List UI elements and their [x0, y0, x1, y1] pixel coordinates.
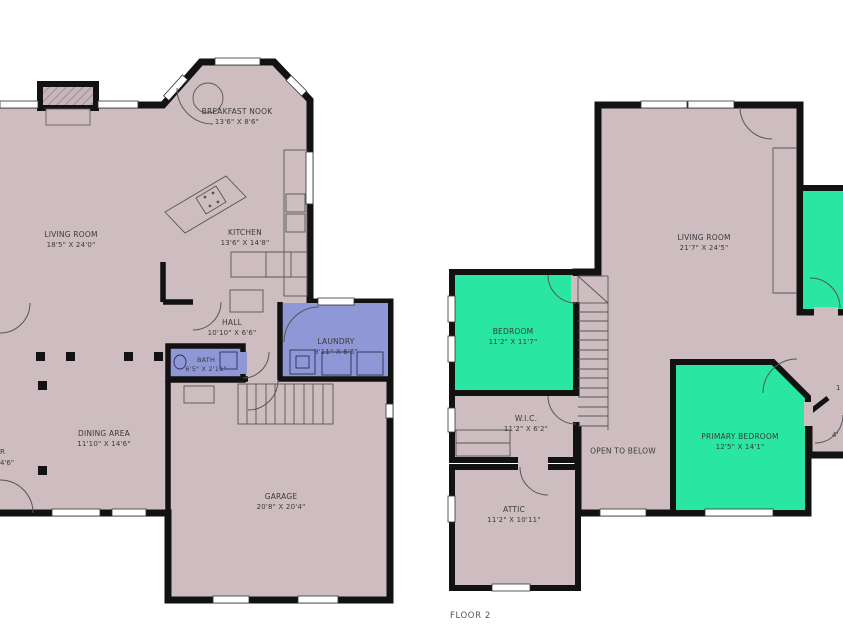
door-opening — [518, 455, 548, 471]
room-name: W.I.C. — [504, 413, 548, 424]
window — [0, 101, 38, 108]
door-opening — [804, 402, 813, 426]
room-name: GARAGE — [257, 491, 306, 502]
door-opening — [239, 352, 247, 374]
window — [306, 152, 313, 204]
room-name: BATH — [185, 356, 226, 365]
window — [448, 336, 455, 362]
post — [66, 352, 75, 361]
label-attic: ATTIC 11'2" X 10'11" — [487, 504, 541, 526]
room-dims: 11'10" X 14'6" — [77, 439, 131, 450]
window — [448, 296, 455, 322]
label-garage: GARAGE 20'8" X 20'4" — [257, 491, 306, 513]
room-name: DINING AREA — [77, 428, 131, 439]
post — [36, 352, 45, 361]
window — [688, 101, 734, 108]
hearth — [46, 109, 90, 125]
label-laundry: LAUNDRY 9'11" X 6'6" — [314, 336, 358, 358]
room-dims: 21'7" X 24'5" — [677, 243, 730, 254]
floorplan-canvas: BREAKFAST NOOK 13'6" X 8'6" LIVING ROOM … — [0, 0, 843, 632]
room-name: OPEN TO BELOW — [590, 445, 656, 456]
room-name: KITCHEN — [221, 227, 270, 238]
room-name: LAUNDRY — [314, 336, 358, 347]
room-dims: 12'5" X 14'1" — [701, 442, 778, 453]
right-edge-fragment-2: 4' — [832, 431, 838, 439]
window — [298, 596, 338, 603]
burner — [204, 196, 207, 199]
floorplan-drawing — [0, 0, 843, 632]
burner — [209, 205, 212, 208]
burner — [217, 201, 220, 204]
window — [213, 596, 249, 603]
door-opening — [571, 396, 583, 422]
label-kitchen: KITCHEN 13'6" X 14'8" — [221, 227, 270, 249]
window — [600, 509, 646, 516]
room-dims: 13'6" X 14'8" — [221, 238, 270, 249]
label-living-room-f2: LIVING ROOM 21'7" X 24'5" — [677, 232, 730, 254]
room-dims: 11'2" X 11'7" — [489, 337, 538, 348]
room-name: LIVING ROOM — [677, 232, 730, 243]
room-name: BREAKFAST NOOK — [202, 106, 273, 117]
window — [215, 58, 260, 65]
door-opening — [796, 320, 805, 344]
post — [38, 381, 47, 390]
chimney — [40, 84, 96, 108]
room-name: HALL — [208, 317, 257, 328]
door-opening — [571, 276, 583, 302]
window — [52, 509, 100, 516]
left-edge-fragment-2: 4'6" — [0, 459, 14, 467]
post — [38, 466, 47, 475]
label-hall: HALL 10'10" X 6'6" — [208, 317, 257, 339]
room-name: ATTIC — [487, 504, 541, 515]
label-open-to-below: OPEN TO BELOW — [590, 445, 656, 456]
burner — [212, 192, 215, 195]
post — [154, 352, 163, 361]
window — [112, 509, 146, 516]
room-dims: 6'5" X 2'11" — [185, 365, 226, 374]
room-name: LIVING ROOM — [44, 229, 97, 240]
label-primary-bedroom: PRIMARY BEDROOM 12'5" X 14'1" — [701, 431, 778, 453]
window — [448, 496, 455, 522]
floor-caption: FLOOR 2 — [450, 611, 491, 621]
label-breakfast-nook: BREAKFAST NOOK 13'6" X 8'6" — [202, 106, 273, 128]
room-dims: 13'6" X 8'6" — [202, 117, 273, 128]
room-dims: 20'8" X 20'4" — [257, 502, 306, 513]
room-name: BEDROOM — [489, 326, 538, 337]
attic-room — [452, 467, 578, 588]
post — [124, 352, 133, 361]
window — [386, 404, 393, 418]
label-bath: BATH 6'5" X 2'11" — [185, 356, 226, 374]
room-dims: 18'5" X 24'0" — [44, 240, 97, 251]
room-dims: 11'2" X 10'11" — [487, 515, 541, 526]
left-edge-fragment-1: R — [0, 448, 5, 456]
window — [705, 509, 773, 516]
label-living-room-f1: LIVING ROOM 18'5" X 24'0" — [44, 229, 97, 251]
room-name: PRIMARY BEDROOM — [701, 431, 778, 442]
floor1-plan — [0, 58, 393, 603]
label-bedroom: BEDROOM 11'2" X 11'7" — [489, 326, 538, 348]
label-wic: W.I.C. 11'2" X 6'2" — [504, 413, 548, 435]
door-opening — [814, 307, 838, 317]
room-dims: 11'2" X 6'2" — [504, 424, 548, 435]
window — [98, 101, 138, 108]
window — [318, 298, 354, 305]
window — [448, 408, 455, 432]
room-dims: 9'11" X 6'6" — [314, 347, 358, 358]
window — [641, 101, 687, 108]
label-dining-area: DINING AREA 11'10" X 14'6" — [77, 428, 131, 450]
room-dims: 10'10" X 6'6" — [208, 328, 257, 339]
window — [492, 584, 530, 591]
right-edge-fragment-1: 1 — [836, 384, 840, 392]
